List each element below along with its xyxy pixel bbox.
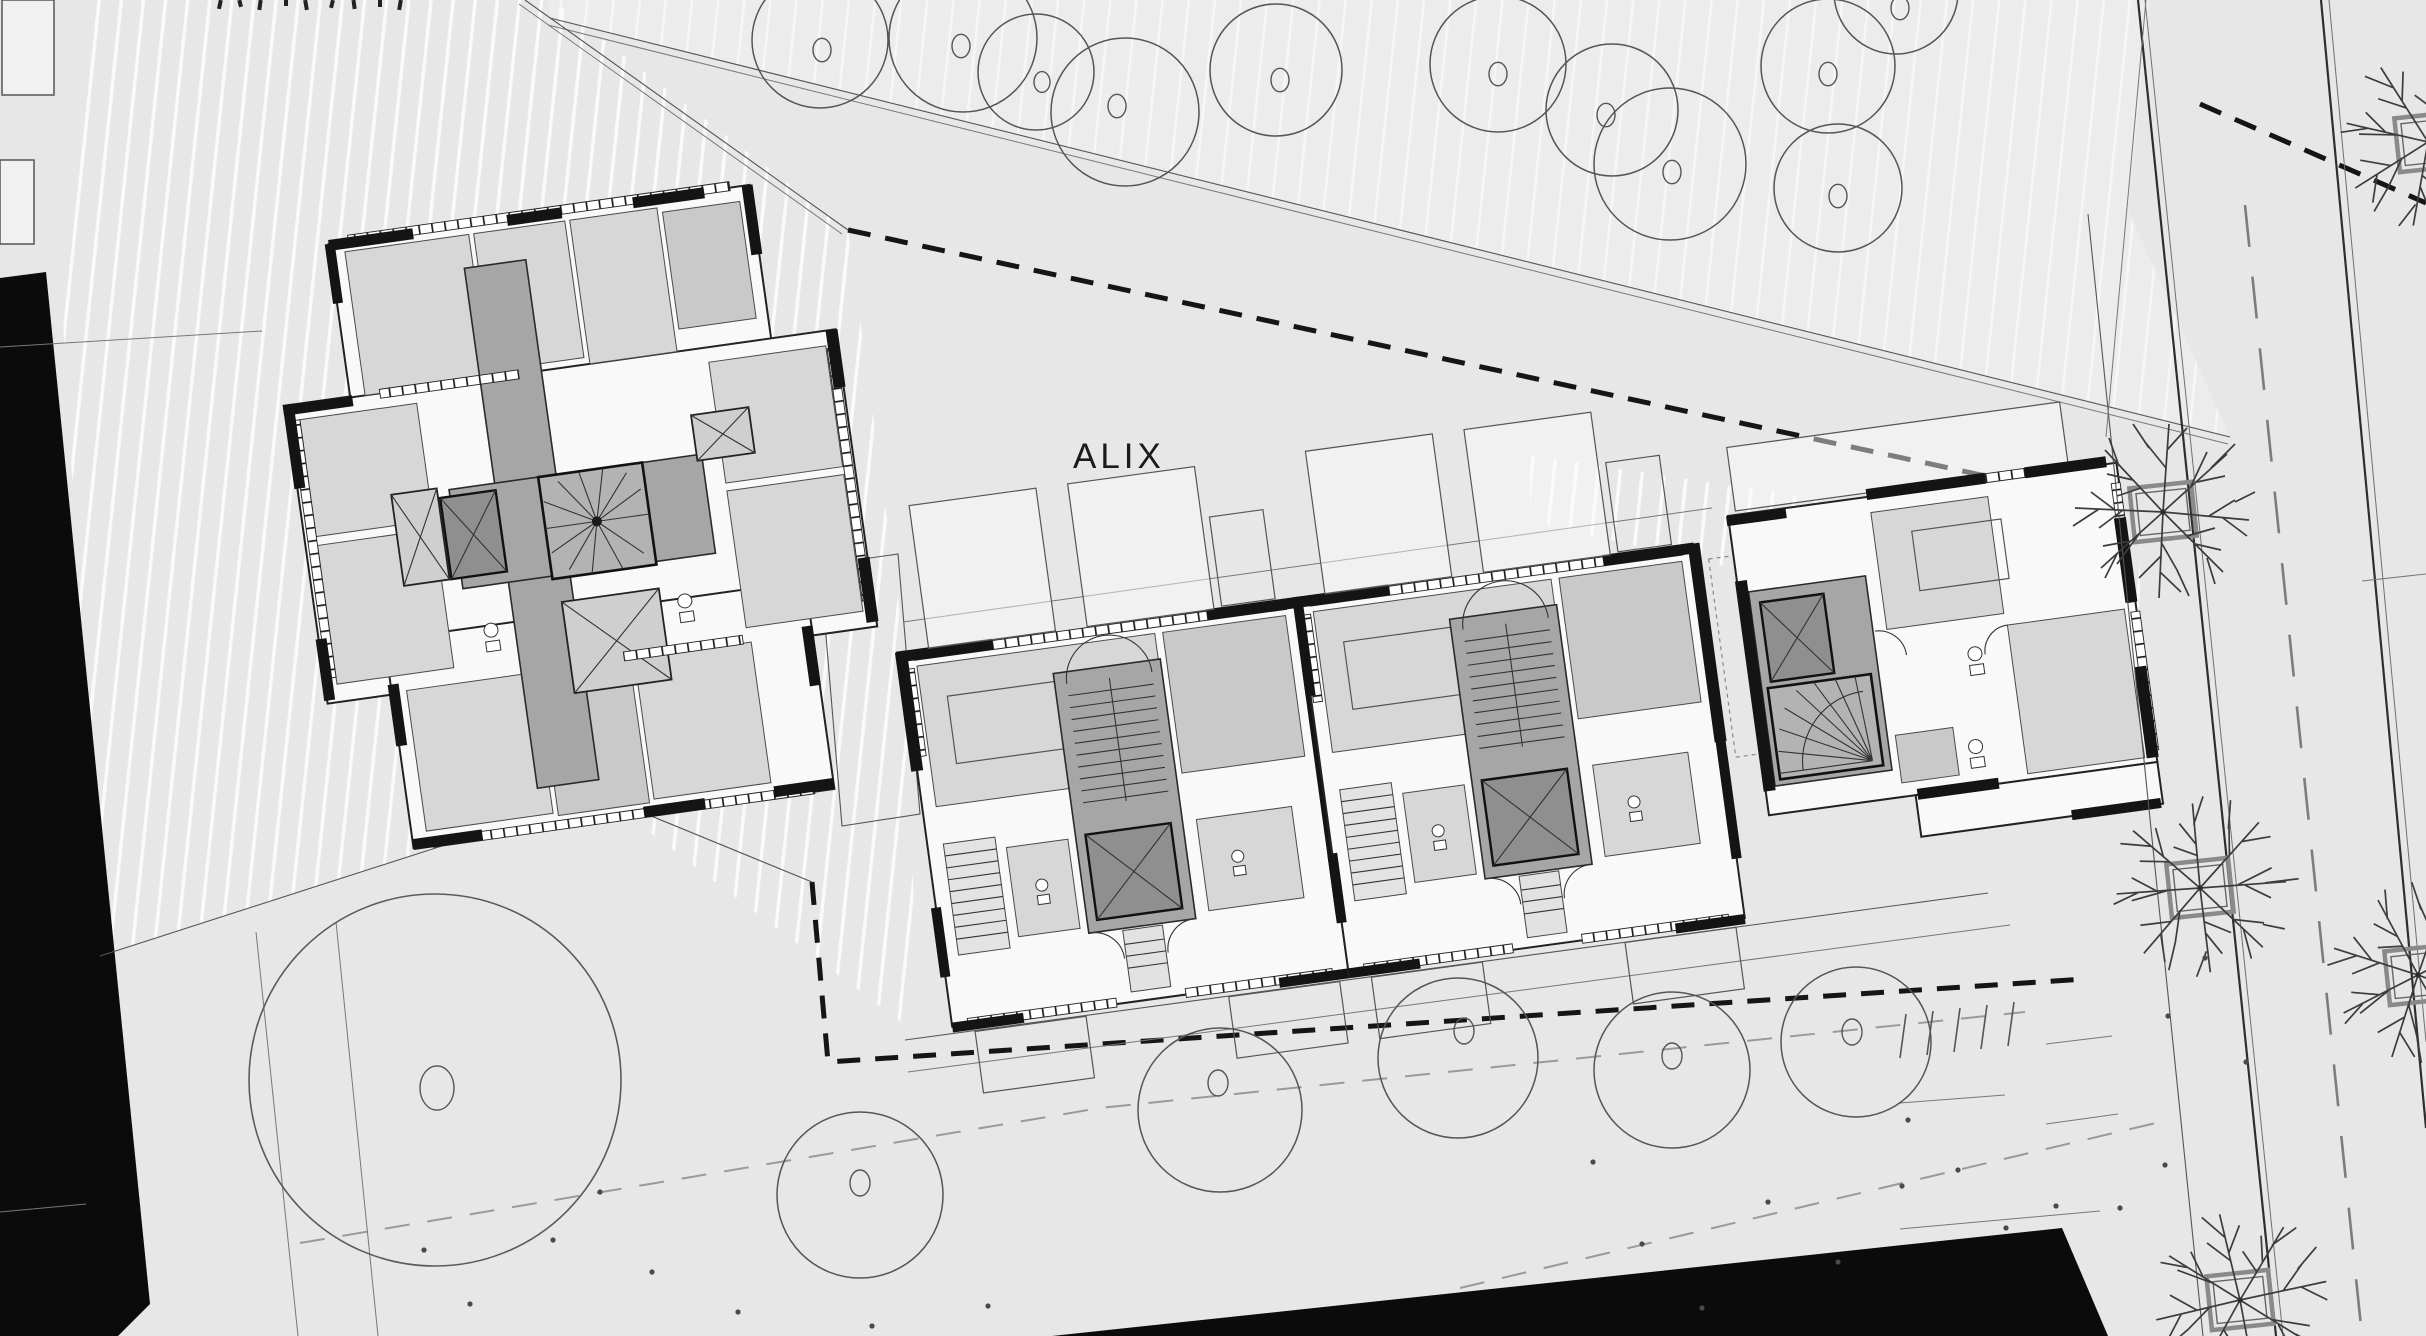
paving-dot [1955,1167,1960,1172]
paving-dot [2202,955,2207,960]
paving-dot [1590,1159,1595,1164]
paving-dot [869,1323,874,1328]
paving-dot [735,1309,740,1314]
paving-dot [649,1269,654,1274]
paving-dot [1699,1305,1704,1310]
paving-dot [2053,1203,2058,1208]
shaft [691,407,755,461]
elevator [1760,594,1834,682]
paving-dot [2243,1059,2248,1064]
site-plan-canvas: ALIX [0,0,2426,1336]
paving-dot [550,1237,555,1242]
paving-dot [467,1301,472,1306]
paving-dot [597,1189,602,1194]
paving-dot [2162,1162,2167,1167]
shaft [562,588,672,693]
spiral-stair [538,463,656,580]
fan-stair [1768,674,1884,779]
paving-dot [985,1303,990,1308]
block-label: ALIX [1073,437,1165,476]
paving-dot [2117,1205,2122,1210]
parcel-rect [0,160,34,244]
paving-dot [421,1247,426,1252]
paving-dot [2003,1225,2008,1230]
paving-dot [1899,1183,1904,1188]
paving-dot [2165,1013,2170,1018]
plan-drawing: ALIX [0,0,2426,1336]
paving-dot [1765,1199,1770,1204]
paving-dot [1905,1117,1910,1122]
paving-dot [1835,1259,1840,1264]
parcel-rect [2,0,54,95]
elevator [440,490,507,579]
paving-dot [1639,1241,1644,1246]
